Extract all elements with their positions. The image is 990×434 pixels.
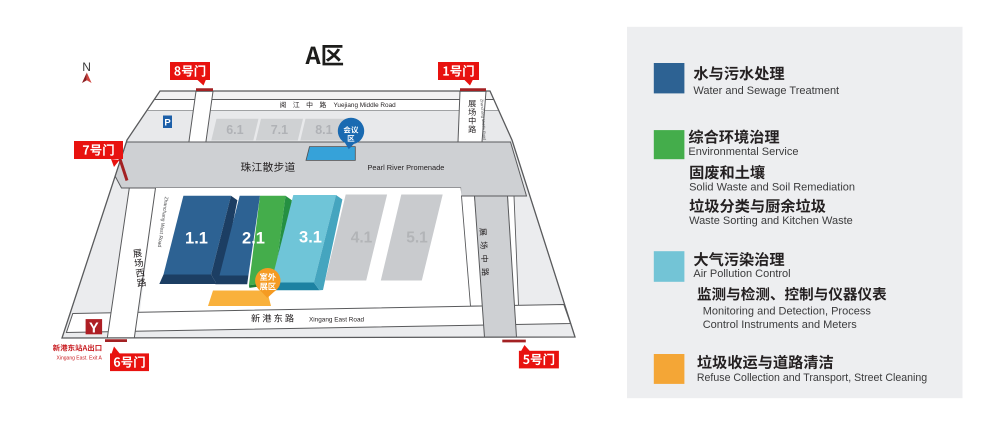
svg-text:5.1: 5.1 (406, 230, 428, 247)
svg-text:Yuejiang Middle Road: Yuejiang Middle Road (334, 102, 397, 109)
svg-text:Waste Sorting and Kitchen Wast: Waste Sorting and Kitchen Waste (689, 215, 853, 227)
svg-text:Monitoring and Detection, Pro: Monitoring and Detection, Process (703, 306, 872, 318)
svg-text:Air Pollution Control: Air Pollution Control (693, 268, 790, 280)
svg-text:P: P (164, 117, 171, 128)
svg-text:4.1: 4.1 (351, 230, 373, 247)
svg-text:1.1: 1.1 (185, 230, 208, 248)
svg-text:Pearl River Promenade: Pearl River Promenade (368, 163, 445, 172)
svg-text:Xingang East Road: Xingang East Road (309, 316, 365, 323)
svg-text:2.1: 2.1 (242, 230, 265, 248)
svg-text:3.1: 3.1 (299, 229, 322, 247)
svg-text:6.1: 6.1 (226, 123, 243, 137)
svg-text:Y: Y (89, 320, 99, 336)
svg-text:Refuse Collection and Transpor: Refuse Collection and Transport, Street … (697, 372, 927, 384)
svg-text:8.1: 8.1 (315, 123, 332, 137)
svg-text:Solid Waste and Soil Remediati: Solid Waste and Soil Remediation (689, 182, 855, 194)
svg-text:7.1: 7.1 (271, 123, 288, 137)
svg-text:Control Instruments and Meters: Control Instruments and Meters (703, 319, 858, 331)
svg-text:Water and Sewage Treatment: Water and Sewage Treatment (693, 85, 839, 97)
svg-text:Xingang East. Exit A: Xingang East. Exit A (57, 355, 103, 361)
svg-text:Environmental Service: Environmental Service (688, 146, 798, 158)
svg-text:N: N (82, 60, 91, 74)
